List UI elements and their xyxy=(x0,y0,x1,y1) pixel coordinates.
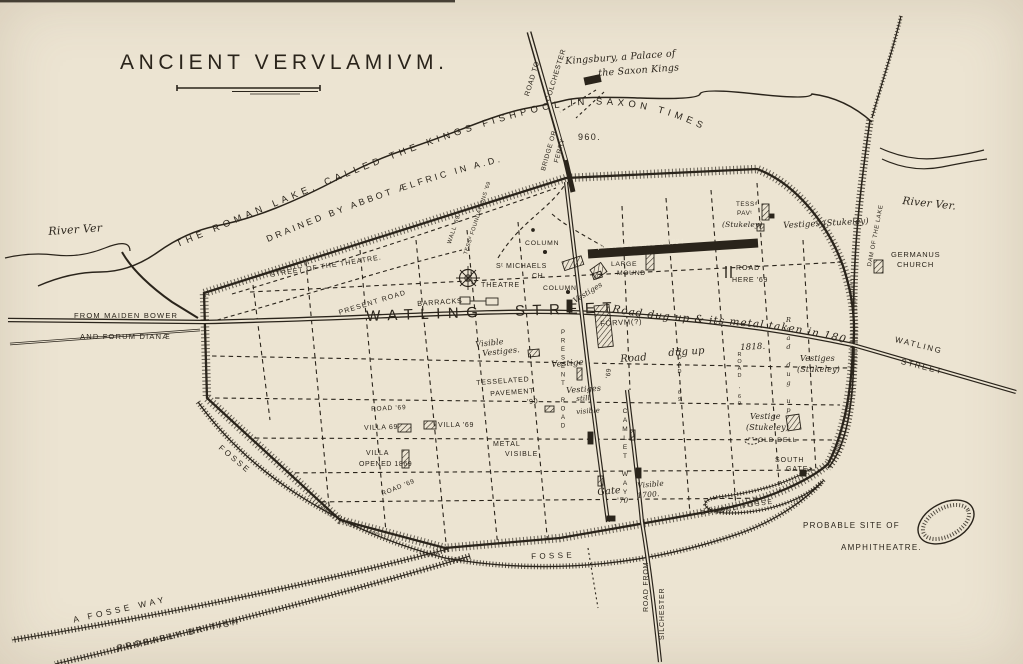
label-tess-pav-2: PAVᵗ xyxy=(737,211,752,218)
label-mound: MOUND xyxy=(617,270,646,277)
label-germanus-church: CHURCH xyxy=(897,261,934,269)
label-silchester: SILCHESTER xyxy=(659,588,666,640)
label-vestige-stukeley2-1: Vestige xyxy=(750,413,781,421)
label-theatre: THEATRE xyxy=(481,281,520,289)
label-vestiges-stukeley3-2: (Stukeley) xyxy=(797,366,840,374)
label-gate-70: '70 xyxy=(617,498,628,505)
svg-text:PROBABLY BRITISH: PROBABLY BRITISH xyxy=(116,616,241,653)
svg-text:A FOSSE WAY: A FOSSE WAY xyxy=(72,594,168,625)
dam-hatching xyxy=(828,120,870,468)
label-column-top: COLUMN xyxy=(525,240,559,247)
label-probable-site: PROBABLE SITE OF xyxy=(803,522,900,530)
label-90: '90 xyxy=(527,398,539,406)
ruin-blocks xyxy=(398,75,883,521)
probably-british-text: PROBABLY BRITISH xyxy=(116,616,241,653)
label-960: 960. xyxy=(578,133,601,142)
label-tess-pav-stukeley: (Stukeley) xyxy=(722,221,762,229)
streets-grid xyxy=(212,183,848,548)
river-ver-left xyxy=(5,244,130,258)
fosse-way-roads xyxy=(12,549,470,664)
diagonal-streets xyxy=(210,90,612,608)
label-south-gate-2: GATE xyxy=(786,466,808,473)
label-villa-69-b: VILLA '69 xyxy=(438,422,474,429)
label-road-dug-up-stack: Road dug up xyxy=(785,316,792,415)
label-vestige-stukeley2-2: (Stukeley) xyxy=(746,424,789,432)
label-road-here-1: ROAD xyxy=(736,265,760,272)
label-villa-opened-2: OPENED 1869 xyxy=(359,461,412,468)
label-st-michaels: Sᵗ MICHAELS xyxy=(496,263,547,270)
label-1818: 1818. xyxy=(740,343,766,353)
label-road-69-stack-a: ROAD '69 xyxy=(676,348,682,404)
label-vestiges-still-2: still xyxy=(576,395,590,403)
river-ver-right xyxy=(872,16,987,169)
label-metal: METAL xyxy=(493,441,521,448)
label-vestiges-stukeley3-1: Vestiges xyxy=(800,355,835,363)
old-dell-mark xyxy=(745,438,759,444)
tess-pavement-block xyxy=(762,204,769,220)
label-present-road-stack: PRESENT ROAD xyxy=(560,330,566,432)
label-amphitheatre: AMPHITHEATRE. xyxy=(841,544,922,552)
label-old-dell: OLD DELL xyxy=(758,437,797,444)
germanus-church-block xyxy=(874,260,883,273)
label-villa-69-a: VILLA 69 xyxy=(364,424,398,433)
label-st-michaels-ch: CH. xyxy=(532,273,546,280)
label-road-word: Road xyxy=(620,353,647,365)
label-villa-opened-1: VILLA xyxy=(366,450,389,457)
fosse-way-text: A FOSSE WAY xyxy=(72,594,168,625)
page-title: ANCIENT VERVLAMIVM. xyxy=(120,52,449,74)
label-from-maiden-bower: FROM MAIDEN BOWER xyxy=(74,312,178,320)
map-canvas: THE ROMAN LAKE, CALLED THE KINGS FISHPOO… xyxy=(0,0,1023,664)
label-column-low: COLUMN xyxy=(543,285,577,292)
label-road-here-2: HERE '69 xyxy=(732,277,768,284)
scale-bar xyxy=(177,85,320,94)
label-large: LARGE xyxy=(611,261,637,268)
label-visible: VISIBLE xyxy=(505,451,538,458)
label-forum-dianae: AND FORUM DIANÆ xyxy=(80,333,171,341)
scan-edge xyxy=(0,0,455,2)
label-tick-69: '69 xyxy=(606,368,614,379)
label-road-69-stack-b: ROAD '69 xyxy=(736,352,742,408)
label-tess-pav-1: TESSᵈ xyxy=(736,202,758,209)
label-fosse-bottom: FOSSE xyxy=(531,551,575,561)
label-germanus: GERMANUS xyxy=(891,251,940,259)
label-south-gate-1: SOUTH xyxy=(775,457,804,464)
label-road-from: ROAD FROM xyxy=(643,562,650,612)
label-camlet-way: CAMLET WAY xyxy=(621,408,628,498)
theatre-icon xyxy=(456,266,480,290)
